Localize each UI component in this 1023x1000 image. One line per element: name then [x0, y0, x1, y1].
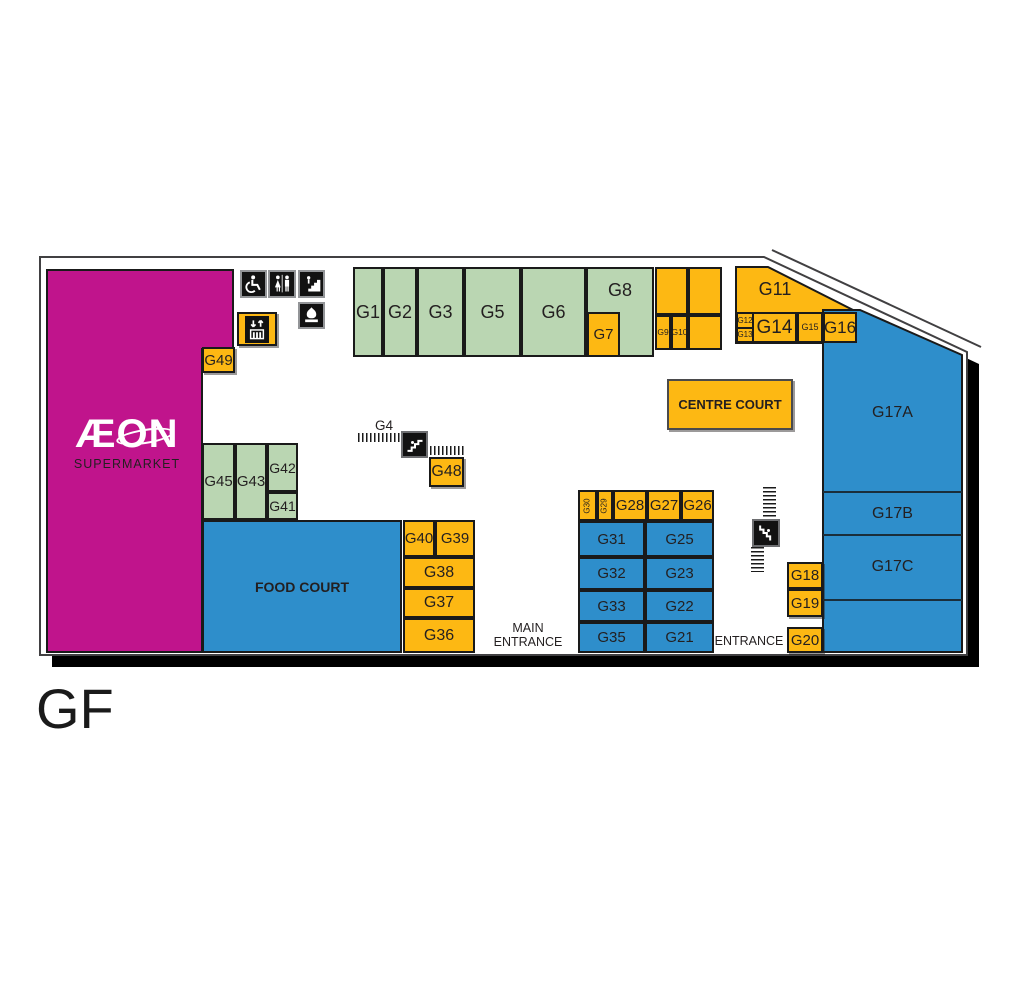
- unit-unlabeled-2[interactable]: [688, 267, 722, 315]
- unit-g7[interactable]: G7: [587, 312, 620, 357]
- unit-g26[interactable]: G26: [681, 490, 714, 521]
- stairs-icon: [298, 270, 325, 298]
- unit-g39[interactable]: G39: [435, 520, 475, 557]
- unit-g23[interactable]: G23: [645, 557, 714, 590]
- prayer-room-icon: [298, 302, 325, 329]
- unit-g3[interactable]: G3: [417, 267, 464, 357]
- elevator-icon: [245, 316, 269, 343]
- escalator-steps: [751, 547, 764, 572]
- escalator-icon-2: [752, 519, 780, 547]
- entrance-label: ENTRANCE: [713, 632, 785, 650]
- unit-g6[interactable]: G6: [521, 267, 586, 357]
- aeon-subtitle: SUPERMARKET: [52, 456, 202, 472]
- unit-g48[interactable]: G48: [429, 457, 464, 487]
- unit-g22[interactable]: G22: [645, 590, 714, 622]
- unit-g5[interactable]: G5: [464, 267, 521, 357]
- floor-plan-base: [0, 0, 1023, 1000]
- unit-unlabeled-3[interactable]: [688, 315, 722, 350]
- food-court[interactable]: FOOD COURT: [202, 520, 402, 653]
- unit-g4-label: G4: [368, 418, 400, 433]
- unit-g15[interactable]: G15: [797, 312, 823, 343]
- unit-g14[interactable]: G14: [752, 312, 797, 343]
- unit-g49[interactable]: G49: [202, 347, 235, 373]
- unit-g18[interactable]: G18: [787, 562, 823, 589]
- unit-g17a-label[interactable]: G17A: [823, 403, 962, 423]
- unit-g20[interactable]: G20: [787, 627, 823, 653]
- centre-court[interactable]: CENTRE COURT: [667, 379, 793, 430]
- unit-g36[interactable]: G36: [403, 618, 475, 653]
- unit-g28[interactable]: G28: [613, 490, 647, 521]
- unit-g40[interactable]: G40: [403, 520, 435, 557]
- escalator-steps: [358, 433, 402, 442]
- unit-g43[interactable]: G43: [235, 443, 267, 520]
- unit-g17b-label[interactable]: G17B: [823, 504, 962, 524]
- unit-g10[interactable]: G10: [671, 315, 688, 350]
- unit-g21[interactable]: G21: [645, 622, 714, 653]
- unit-g42[interactable]: G42: [267, 443, 298, 492]
- unit-unlabeled-1[interactable]: [655, 267, 688, 315]
- unit-g17c-label[interactable]: G17C: [823, 557, 962, 577]
- unit-g2[interactable]: G2: [383, 267, 417, 357]
- unit-g9[interactable]: G9: [655, 315, 671, 350]
- restrooms-icon: [268, 270, 296, 298]
- unit-g27[interactable]: G27: [647, 490, 681, 521]
- floor-plan: ÆON SUPERMARKET G49 G1 G2 G3 G5 G6 G8 G7…: [0, 0, 1023, 1000]
- unit-g32[interactable]: G32: [578, 557, 645, 590]
- unit-g11-label[interactable]: G11: [745, 278, 805, 300]
- unit-g16[interactable]: G16: [823, 312, 857, 343]
- elevator-tile: [237, 312, 277, 346]
- unit-g38[interactable]: G38: [403, 557, 475, 588]
- wheelchair-icon: [240, 270, 267, 298]
- unit-g1[interactable]: G1: [353, 267, 383, 357]
- floor-label: GF: [36, 676, 156, 742]
- unit-g19[interactable]: G19: [787, 589, 823, 617]
- unit-g35[interactable]: G35: [578, 622, 645, 653]
- unit-g33[interactable]: G33: [578, 590, 645, 622]
- main-entrance-label: MAIN ENTRANCE: [480, 617, 576, 653]
- escalator-icon: [401, 431, 428, 458]
- unit-g41[interactable]: G41: [267, 492, 298, 520]
- unit-g29[interactable]: G29: [597, 490, 613, 521]
- unit-g37[interactable]: G37: [403, 588, 475, 618]
- unit-g30[interactable]: G30: [578, 490, 597, 521]
- escalator-steps: [430, 446, 465, 455]
- unit-g45[interactable]: G45: [202, 443, 235, 520]
- escalator-steps: [763, 487, 776, 520]
- unit-g31[interactable]: G31: [578, 521, 645, 557]
- unit-g25[interactable]: G25: [645, 521, 714, 557]
